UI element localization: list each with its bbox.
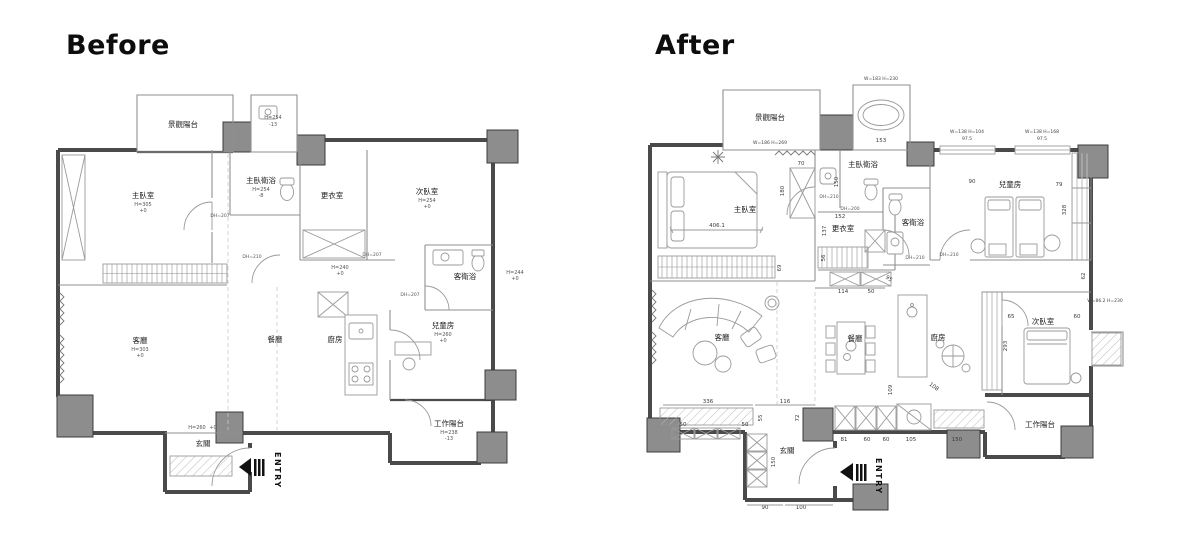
dim: 105 [906, 437, 917, 443]
dim: W=138 H=168 [1025, 129, 1059, 135]
dim: 336 [703, 399, 714, 405]
dim: 152 [835, 214, 846, 220]
dim: 56 [821, 254, 827, 261]
room-label-work-balcony: 工作陽台 [1025, 419, 1055, 429]
before-toilet-icon [280, 178, 294, 201]
room-label-balcony: 景觀陽台 [168, 119, 198, 129]
note: +0 [336, 271, 343, 277]
kids-beds [971, 197, 1060, 257]
room-label-kitchen: 廚房 [931, 332, 946, 342]
note: +0 [209, 425, 216, 431]
dim: W=186 H=269 [753, 140, 787, 146]
room-label-kitchen: 廚房 [328, 334, 343, 344]
dim: W=183 H=230 [864, 76, 898, 82]
room-label-dining: 餐廳 [268, 334, 283, 344]
note: -13 [445, 436, 453, 442]
dim: 180 [780, 185, 786, 196]
before-guest-bath-fixtures [433, 250, 484, 271]
door-label: DH=207 [210, 213, 229, 219]
before-kids-desk [395, 342, 431, 370]
dim: 79 [1056, 182, 1063, 188]
dim: W=138 H=104 [950, 129, 984, 135]
after-floor-plan: ENTRY 景觀陽台 W=186 H=269 W=183 H=230 153 主… [635, 60, 1195, 544]
before-kitchen-counter [345, 315, 377, 395]
curtain-icon [60, 335, 64, 383]
room-label-guest-bath: 客衛浴 [454, 271, 477, 281]
note: +0 [136, 353, 143, 359]
door-label: DH=210 [939, 252, 958, 258]
room-label-kids: 兒童房 [432, 320, 455, 330]
room-label-master: 主臥室 [132, 190, 155, 200]
door-label: DH=207 [400, 292, 419, 298]
dim: 153 [876, 138, 887, 144]
door-label: DH=210 [819, 194, 838, 200]
note: +0 [511, 276, 518, 282]
note: H=254 [264, 115, 282, 121]
dim: 62 [1081, 273, 1087, 280]
dim: 70 [798, 161, 805, 167]
note: +0 [439, 338, 446, 344]
dim: 50 [680, 422, 687, 428]
door-label: DH=200 [840, 206, 859, 212]
room-label-second: 次臥室 [416, 186, 439, 196]
dim: 109 [888, 384, 894, 395]
door-label: DH=207 [362, 252, 381, 258]
note: -13 [269, 122, 277, 128]
room-label-dressing: 更衣室 [832, 223, 855, 233]
dim: 406.1 [709, 223, 725, 229]
dim: 95 [884, 275, 894, 284]
note: +0 [423, 204, 430, 210]
room-label-master: 主臥室 [734, 204, 757, 214]
before-columns [57, 122, 518, 463]
dim: 293 [1003, 340, 1009, 351]
before-title: Before [66, 30, 170, 61]
after-entry-label: ENTRY [874, 458, 883, 495]
room-label-dining: 餐廳 [848, 333, 863, 343]
room-label-kids: 兒童房 [999, 179, 1022, 189]
ceiling-line [228, 154, 277, 430]
room-label-work-balcony: 工作陽台 [434, 418, 464, 428]
dim: 100 [796, 505, 807, 511]
dim: 328 [1062, 204, 1068, 215]
dim: 137 [822, 225, 828, 236]
washer-icon [897, 404, 931, 430]
dim: 60 [864, 437, 871, 443]
curtain-icon [652, 290, 656, 322]
room-label-dressing: 更衣室 [321, 190, 344, 200]
ceiling-line [777, 282, 815, 408]
dim: 97.5 [1037, 136, 1047, 142]
room-label-foyer: 玄關 [780, 445, 795, 455]
dim: 116 [780, 399, 791, 405]
after-title: After [655, 30, 735, 61]
room-label-guest-bath: 客衛浴 [902, 217, 925, 227]
curtain-icon [60, 293, 64, 325]
dim: 97.5 [962, 136, 972, 142]
dim: 72 [795, 415, 801, 422]
before-floor-plan: ENTRY 景觀陽台 H=254 -13 主臥室 H=305 +0 主臥衛浴 H… [45, 80, 600, 544]
dim: 60 [1074, 314, 1081, 320]
ceiling-fan-icon [711, 150, 725, 164]
room-label-foyer: 玄關 [196, 438, 211, 448]
dim: W=86.2 H=230 [1087, 298, 1123, 304]
curtain-icon [652, 332, 656, 364]
dim: 69 [777, 264, 783, 271]
dim: 60 [883, 437, 890, 443]
dim: 114 [838, 289, 849, 295]
note: H=260 [188, 425, 206, 431]
dim: 81 [841, 437, 848, 443]
curtain-icon [775, 151, 815, 155]
second-bed [1024, 328, 1081, 384]
room-label-second: 次臥室 [1032, 316, 1055, 326]
door-label: DH=210 [242, 254, 261, 260]
door-label: DH=210 [905, 255, 924, 261]
dim: 150 [952, 437, 963, 443]
dim: 65 [1008, 314, 1015, 320]
dim: 150 [771, 456, 777, 467]
dim: 90 [969, 179, 976, 185]
dim: 50 [742, 422, 749, 428]
room-label-living: 客廳 [715, 332, 730, 342]
dim: 55 [758, 414, 764, 421]
bathtub-icon [858, 100, 904, 130]
dim: 150 [834, 176, 840, 187]
entry-arrow-icon [840, 463, 867, 481]
note: +0 [139, 208, 146, 214]
room-label-living: 客廳 [133, 335, 148, 345]
note: -8 [259, 193, 264, 199]
dim: 50 [868, 289, 875, 295]
room-label-balcony: 景觀陽台 [755, 112, 785, 122]
dining-table [826, 322, 875, 374]
dim: 108 [928, 382, 940, 393]
before-entry-label: ENTRY [273, 452, 282, 489]
dim: 90 [762, 505, 769, 511]
room-label-master-bath: 主臥衛浴 [848, 159, 878, 169]
room-label-master-bath: 主臥衛浴 [246, 175, 276, 185]
